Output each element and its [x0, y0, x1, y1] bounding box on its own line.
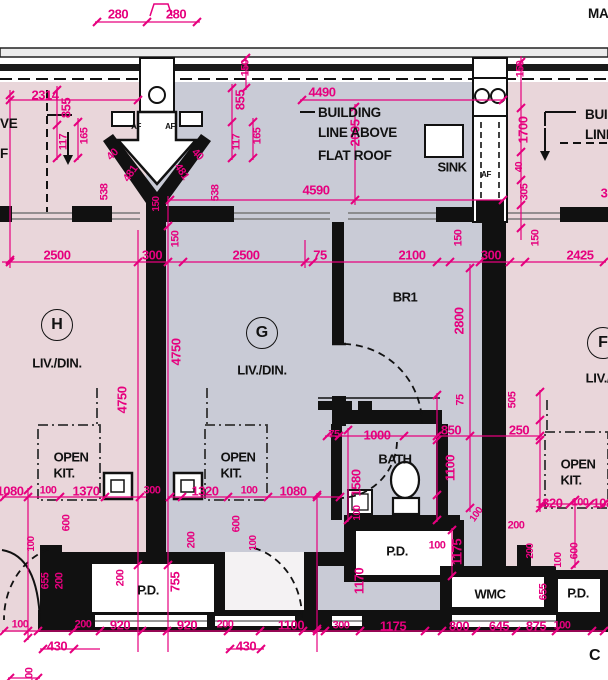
note-line: BUILDING [318, 103, 397, 123]
note-line: BUIL [585, 105, 608, 125]
top-exterior-wall [0, 48, 608, 71]
building-line-note: BUILDING LINE ABOVE FLAT ROOF [318, 103, 397, 166]
plan-linework [0, 0, 608, 680]
note-line: FLAT ROOF [318, 146, 397, 166]
left-edge-note-fragment-1: VE [0, 114, 17, 134]
right-service-column [473, 58, 507, 222]
note-line: LINE ABOVE [318, 123, 397, 143]
section-corner-letter: C [589, 646, 600, 666]
right-edge-note: BUIL LINE [585, 105, 608, 145]
floor-plan-canvas: 2802802314449085585515015011716511716540… [0, 0, 608, 680]
bottom-band-and-pd-boxes [38, 520, 608, 632]
left-edge-note-fragment-2: F [0, 144, 8, 164]
top-right-title-fragment: MA [588, 4, 608, 24]
note-line: LINE [585, 125, 608, 145]
